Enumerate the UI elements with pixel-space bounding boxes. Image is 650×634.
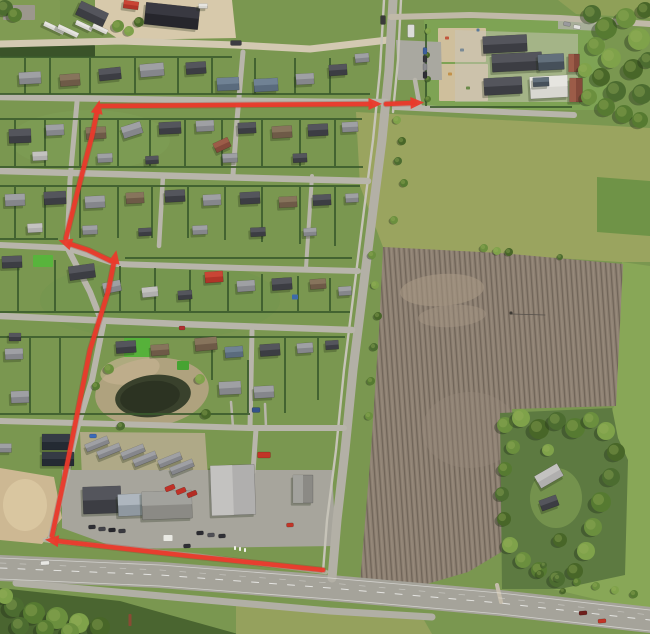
house [41, 191, 66, 208]
car [207, 533, 214, 537]
house [3, 194, 26, 209]
car [196, 531, 203, 535]
house [294, 342, 313, 356]
house [163, 189, 186, 205]
terrain-region [396, 40, 442, 80]
car [40, 561, 49, 565]
house [17, 71, 42, 87]
house [124, 192, 145, 207]
house [216, 381, 241, 398]
house [301, 228, 317, 239]
house [270, 125, 293, 141]
car [423, 56, 427, 63]
house [80, 225, 98, 237]
house [44, 124, 65, 139]
house [201, 194, 222, 209]
house [352, 53, 369, 66]
house [83, 195, 106, 211]
car [179, 326, 185, 330]
map-detail [129, 614, 132, 626]
house [96, 67, 122, 84]
house [25, 223, 43, 235]
building [80, 486, 121, 517]
house [3, 348, 24, 362]
house [137, 62, 164, 80]
map-detail [292, 295, 298, 300]
building [535, 53, 564, 73]
car [108, 528, 115, 532]
building [489, 52, 542, 75]
map-detail [477, 29, 480, 32]
map-detail [466, 87, 470, 90]
terrain-region [597, 177, 650, 236]
car [118, 529, 125, 533]
house [157, 121, 182, 137]
map-detail [244, 548, 246, 552]
house [183, 61, 206, 77]
house [143, 156, 159, 167]
building [531, 77, 550, 90]
house [336, 286, 352, 299]
car [598, 619, 606, 624]
map-detail [510, 312, 513, 315]
map-detail [234, 546, 236, 550]
house [192, 337, 217, 355]
building [481, 77, 522, 99]
map-detail [164, 535, 173, 541]
terrain-region [33, 255, 53, 267]
house [148, 344, 169, 359]
car [218, 534, 225, 538]
car [423, 72, 427, 79]
car [381, 16, 386, 25]
road [250, 331, 252, 428]
terrain-region [177, 361, 189, 370]
house [194, 120, 215, 135]
aerial-route-map [0, 0, 650, 634]
house [323, 340, 339, 353]
house [277, 196, 298, 211]
house [291, 153, 308, 165]
car [183, 544, 190, 548]
house [9, 391, 30, 406]
car [252, 408, 260, 413]
house [257, 343, 280, 359]
car [563, 22, 570, 27]
car [258, 452, 271, 458]
house [306, 123, 329, 139]
car [98, 527, 105, 531]
house [269, 277, 292, 293]
house [252, 385, 275, 401]
route-line [386, 103, 412, 104]
house [95, 153, 113, 165]
house [7, 129, 32, 146]
building [291, 475, 313, 506]
building [139, 490, 192, 522]
car [423, 48, 427, 55]
house [340, 122, 359, 136]
car [573, 25, 580, 30]
house [222, 346, 243, 361]
house [294, 73, 315, 88]
house [236, 122, 257, 137]
house [57, 73, 80, 89]
road [265, 404, 266, 427]
house [136, 228, 152, 239]
house [139, 286, 158, 300]
map-canvas [0, 0, 650, 634]
car [231, 41, 242, 46]
house [311, 194, 332, 209]
map-detail [239, 547, 241, 551]
house [307, 278, 326, 292]
map-detail [460, 49, 464, 52]
terrain-region [3, 479, 47, 531]
house [113, 340, 136, 356]
house [234, 280, 255, 295]
house [0, 256, 22, 271]
car [408, 25, 415, 38]
car [88, 525, 95, 529]
house [343, 193, 359, 205]
house [202, 271, 223, 286]
map-detail [448, 73, 452, 76]
building [40, 434, 70, 453]
map-detail [445, 37, 449, 40]
building [208, 464, 256, 518]
house [326, 64, 347, 79]
house [176, 290, 193, 303]
house [214, 77, 239, 94]
house [30, 151, 48, 163]
house [238, 191, 261, 207]
route-line [100, 104, 370, 106]
house [190, 225, 208, 237]
car [90, 434, 97, 438]
house [220, 153, 238, 165]
car [579, 611, 587, 616]
car [423, 64, 427, 71]
car [286, 523, 293, 527]
house [248, 227, 266, 239]
house [251, 78, 278, 95]
